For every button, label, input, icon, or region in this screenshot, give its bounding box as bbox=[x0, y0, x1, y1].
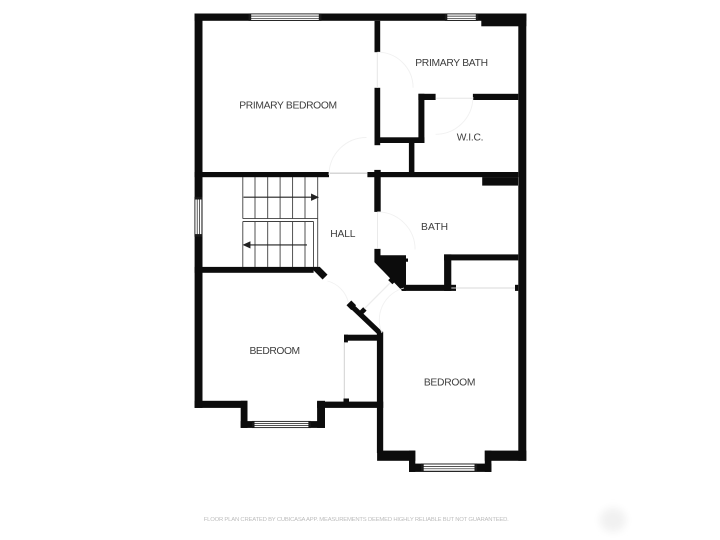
svg-text:HALL: HALL bbox=[330, 229, 356, 240]
svg-text:PRIMARY BATH: PRIMARY BATH bbox=[415, 58, 488, 69]
svg-text:PRIMARY BEDROOM: PRIMARY BEDROOM bbox=[239, 101, 337, 112]
svg-text:BATH: BATH bbox=[421, 222, 448, 233]
svg-text:BEDROOM: BEDROOM bbox=[424, 378, 475, 389]
svg-text:FLOOR PLAN CREATED BY CUBICASA: FLOOR PLAN CREATED BY CUBICASA APP. MEAS… bbox=[204, 517, 509, 523]
svg-text:BEDROOM: BEDROOM bbox=[249, 346, 299, 357]
svg-text:W.I.C.: W.I.C. bbox=[457, 133, 483, 144]
